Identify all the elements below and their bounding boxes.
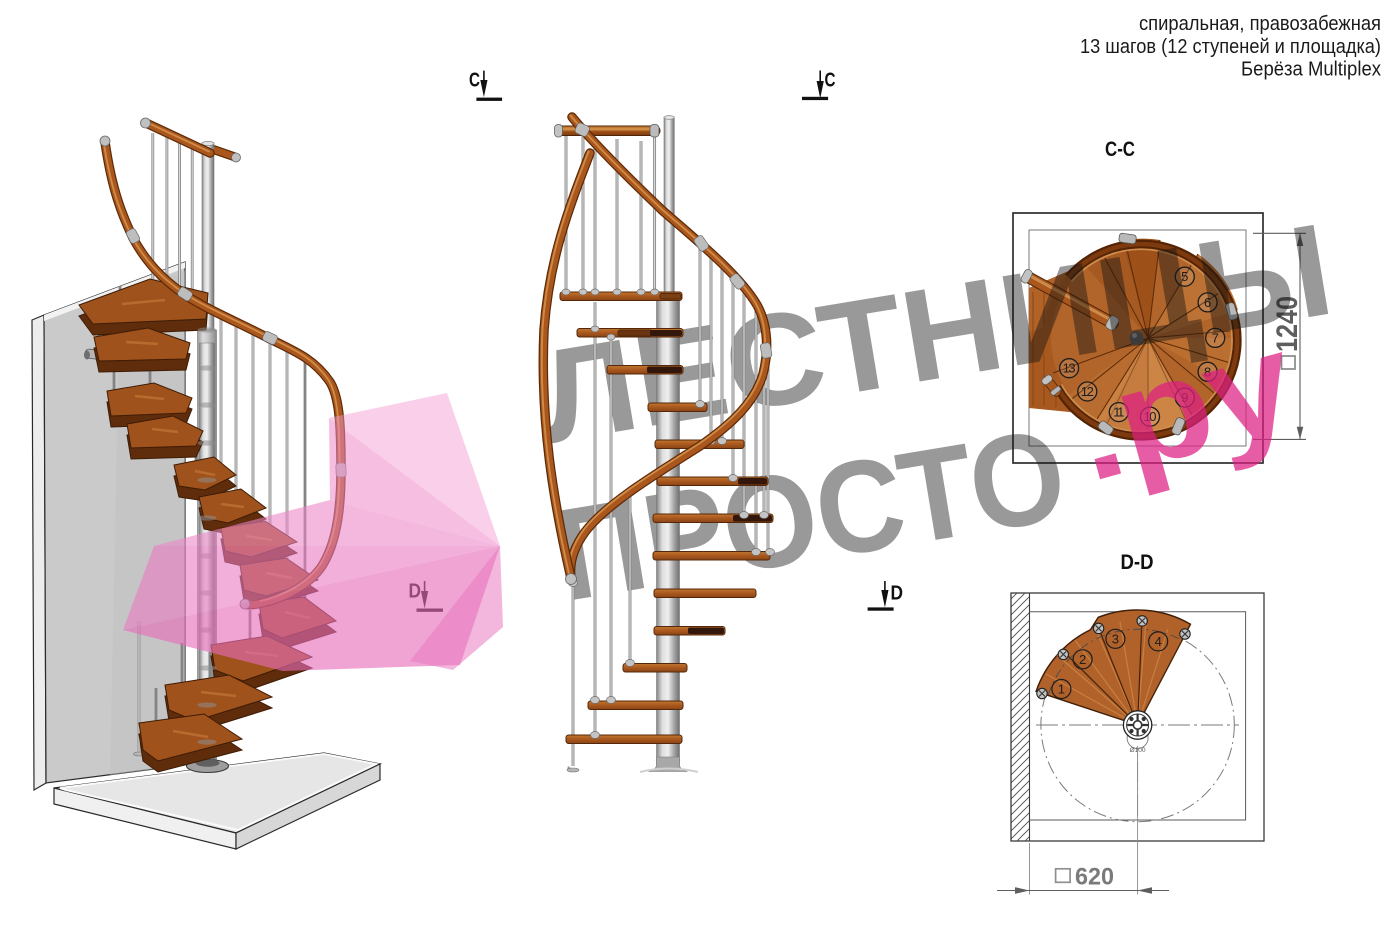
svg-text:D: D xyxy=(891,583,904,605)
svg-text:C: C xyxy=(469,70,480,92)
svg-text:4: 4 xyxy=(1155,634,1162,649)
svg-text:C: C xyxy=(825,70,836,92)
svg-text:спиральная, правозабежная: спиральная, правозабежная xyxy=(1139,13,1381,35)
svg-text:13 шагов (12 ступеней и площад: 13 шагов (12 ступеней и площадка) xyxy=(1080,36,1381,58)
svg-text:D-D: D-D xyxy=(1121,551,1154,574)
svg-text:Берёза Multiplex: Берёза Multiplex xyxy=(1241,59,1381,81)
svg-text:620: 620 xyxy=(1075,864,1114,891)
svg-text:2: 2 xyxy=(1079,652,1086,667)
svg-text:3: 3 xyxy=(1112,631,1119,646)
svg-text:1: 1 xyxy=(1058,682,1065,697)
svg-text:C-C: C-C xyxy=(1105,138,1135,161)
